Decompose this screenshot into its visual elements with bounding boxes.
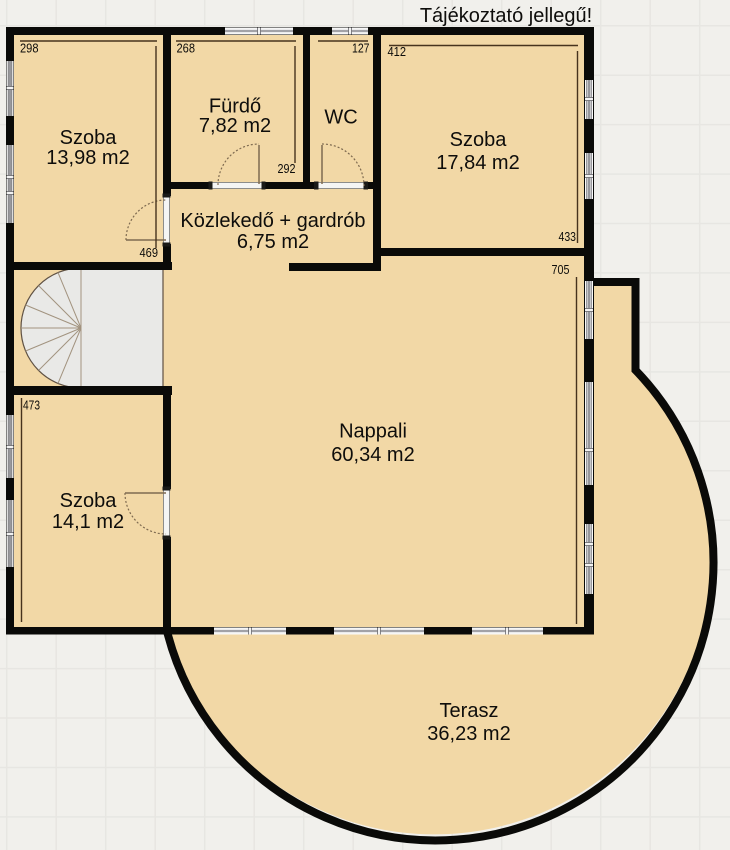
- svg-text:412: 412: [388, 45, 407, 59]
- svg-text:292: 292: [278, 162, 296, 176]
- svg-text:60,34 m2: 60,34 m2: [331, 444, 414, 466]
- svg-text:268: 268: [177, 42, 196, 56]
- svg-text:298: 298: [20, 42, 39, 56]
- svg-text:127: 127: [352, 42, 370, 56]
- svg-text:Terasz: Terasz: [440, 700, 499, 722]
- svg-text:14,1 m2: 14,1 m2: [52, 511, 124, 533]
- svg-text:Szoba: Szoba: [60, 490, 118, 512]
- svg-text:473: 473: [23, 399, 40, 413]
- svg-text:Szoba: Szoba: [60, 127, 118, 149]
- svg-text:469: 469: [140, 246, 159, 260]
- svg-text:36,23 m2: 36,23 m2: [427, 723, 510, 745]
- svg-text:Közlekedő + gardrób: Közlekedő + gardrób: [180, 210, 365, 232]
- svg-text:7,82 m2: 7,82 m2: [199, 115, 271, 137]
- svg-text:Szoba: Szoba: [450, 129, 508, 151]
- svg-text:WC: WC: [324, 107, 357, 129]
- svg-text:Tájékoztató jellegű!: Tájékoztató jellegű!: [420, 5, 592, 27]
- svg-text:705: 705: [552, 263, 570, 277]
- svg-text:13,98 m2: 13,98 m2: [46, 147, 129, 169]
- svg-text:433: 433: [559, 230, 577, 244]
- svg-text:6,75 m2: 6,75 m2: [237, 231, 309, 253]
- svg-text:17,84 m2: 17,84 m2: [436, 152, 519, 174]
- svg-text:Nappali: Nappali: [339, 421, 407, 443]
